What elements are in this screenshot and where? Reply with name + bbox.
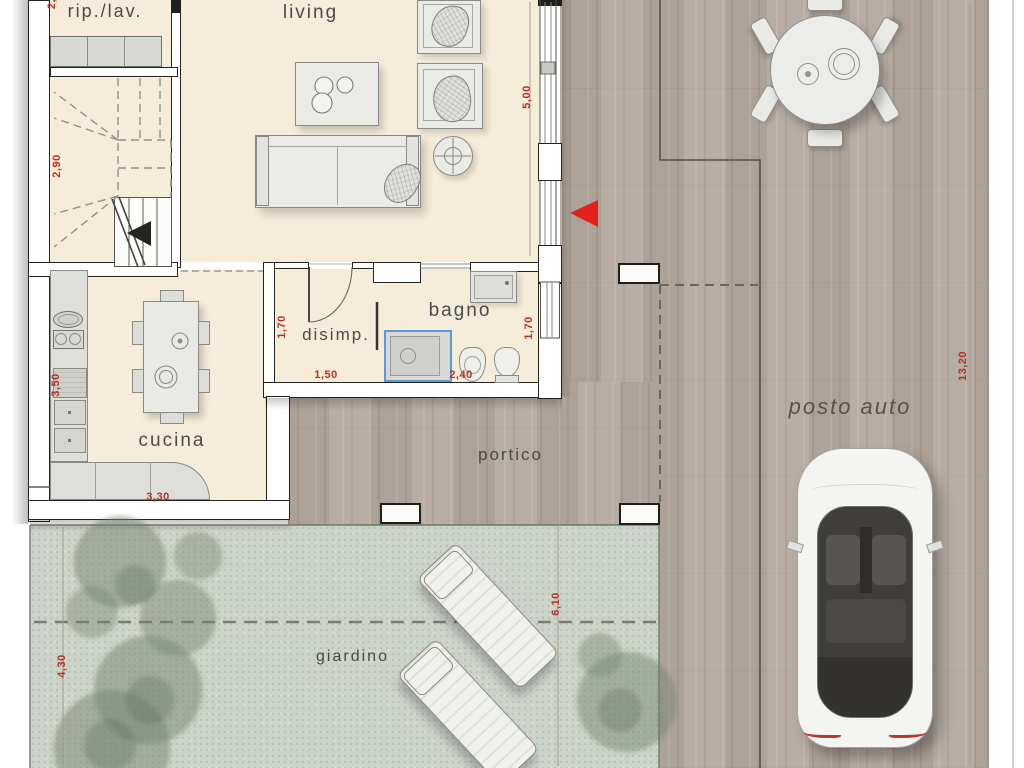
stairs-living-wall [171, 0, 181, 268]
bath-sink-drain [505, 281, 509, 285]
bath-right-wall [538, 283, 562, 399]
car-center-console [860, 527, 872, 593]
dim-giardino-430: 4,30 [56, 644, 68, 688]
pouf [433, 136, 473, 176]
outdoor-table-plate-large-inner [833, 53, 855, 75]
kitchen-cabinet-2-knob [68, 439, 71, 442]
dim-riplav-partial: 2, [46, 0, 58, 26]
car-seat-front-right [872, 535, 906, 585]
dim-giardino-610: 6,10 [550, 582, 562, 626]
portico-column-southeast [619, 503, 660, 525]
dim-bagno-240: 2,40 [439, 369, 483, 381]
glazing-pier-lower [538, 245, 562, 283]
room-label-cucina: cucina [128, 430, 216, 452]
living-floor [181, 0, 540, 262]
kitchen-bottom-wall [28, 500, 290, 520]
riplav-counter [50, 36, 162, 67]
shower-drain [400, 348, 416, 364]
bath-south-wall [263, 382, 562, 398]
deck-right-edge-line [987, 0, 989, 768]
stairs-living-wall-cap [171, 0, 181, 13]
riplav-stairs-wall [50, 67, 178, 77]
sofa-back-line [257, 146, 419, 147]
outdoor-table-plate-small-dot [805, 71, 811, 77]
room-label-disimp: disimp. [298, 325, 374, 345]
east-glazing [540, 0, 556, 245]
sofa-armrest-left [256, 136, 269, 206]
dim-cucina-350: 3,50 [50, 363, 62, 407]
room-label-portico: portico [468, 445, 553, 465]
bath-sink-basin [474, 275, 513, 299]
room-label-living: living [268, 2, 353, 24]
dining-chair-right-2 [198, 369, 210, 393]
room-label-bagno: bagno [420, 300, 500, 322]
outdoor-chair-top [807, 0, 843, 11]
dim-cucina-330: 3,30 [136, 491, 180, 503]
car-rear-deck [818, 657, 913, 718]
car-rear-seat [826, 599, 906, 643]
car-glass-roof [817, 506, 913, 718]
dim-stairs-290: 2,90 [51, 144, 63, 188]
toilet-tank [495, 375, 519, 383]
dining-chair-right-1 [198, 321, 210, 345]
room-label-giardino: giardino [310, 648, 395, 666]
floor-plan-canvas: rip./lav. living disimp. bagno cucina po… [0, 0, 1024, 768]
dining-chair-left-1 [132, 321, 144, 345]
glazing-pier-upper [538, 143, 562, 181]
garden-area [30, 525, 659, 768]
sofa-cushion-split [337, 147, 338, 205]
page-border-line [1012, 0, 1014, 768]
dining-chair-bottom [160, 412, 184, 424]
kitchen-burner-left [55, 333, 67, 345]
kitchen-sink-bowl [58, 314, 79, 325]
stairs-lower-flight [114, 197, 172, 267]
disimp-left-wall [263, 262, 275, 398]
living-south-glass [420, 264, 470, 268]
living-south-wall-mid [352, 262, 374, 269]
outdoor-table [770, 15, 880, 125]
outdoor-chair-bottom [807, 129, 843, 147]
dim-living-500: 5,00 [521, 75, 533, 119]
car-top-view [797, 444, 933, 752]
kitchen-cabinet-1-knob [68, 411, 71, 414]
portico-column-southwest [380, 503, 421, 524]
kitchen-bottom-counter [50, 462, 210, 500]
car-seat-front-left [826, 535, 860, 585]
dining-table [143, 301, 199, 413]
left-exterior-wall [28, 0, 50, 522]
glazing-top-cap [538, 0, 562, 6]
dining-chair-top [160, 290, 184, 302]
kitchen-burner-right [69, 333, 81, 345]
dim-disimp-170: 1,70 [276, 305, 288, 349]
dim-lot-1320: 13,20 [957, 344, 969, 388]
dim-bagno-170: 1,70 [523, 306, 535, 350]
coffee-table [295, 62, 379, 126]
room-label-rip-lav: rip./lav. [55, 1, 155, 22]
dim-disimp-150: 1,50 [304, 369, 348, 381]
kitchen-counter-divider-1 [95, 462, 96, 500]
car-hood-line [811, 484, 919, 497]
dining-chair-left-2 [132, 369, 144, 393]
portico-column-northeast [618, 263, 660, 284]
page-right-margin [988, 0, 1024, 768]
building-left-shadow [12, 0, 28, 524]
room-label-posto-auto: posto auto [775, 394, 925, 420]
living-south-pier [373, 262, 421, 283]
